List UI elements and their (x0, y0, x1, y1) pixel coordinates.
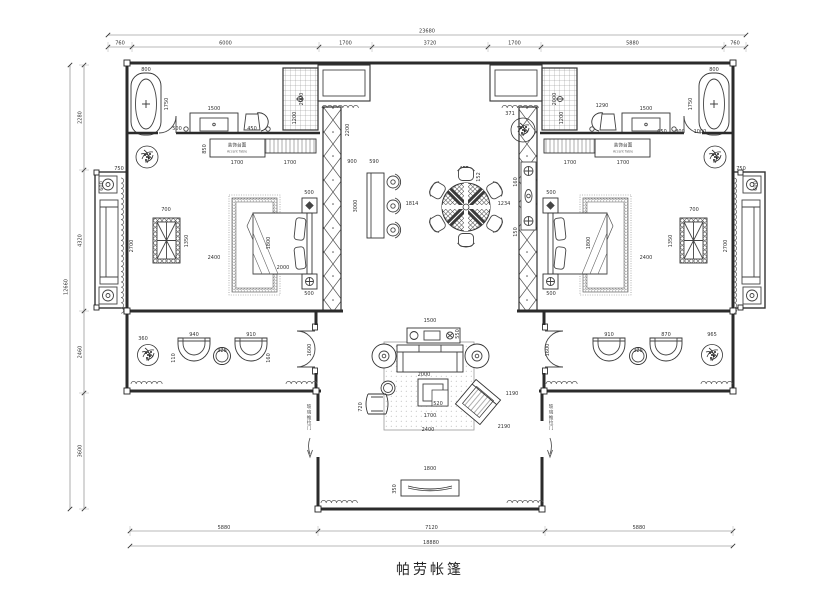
dim-label: 2700 (723, 240, 729, 253)
dim-label: 350 (392, 484, 398, 494)
dim-label: 2000 (299, 93, 305, 106)
dim-label: 2000 (552, 93, 558, 106)
right-half-geometry (490, 65, 765, 457)
drawing-title: 帕劳帐篷 (396, 562, 464, 578)
dim-label: 1600 (545, 344, 551, 357)
dim-label: 1814 (406, 201, 419, 207)
bar-counter (367, 173, 384, 238)
sliding-door-label: 玻璃推拉门 (549, 403, 554, 432)
dim-label: 800 (709, 67, 719, 73)
dim-label: 800 (675, 129, 685, 135)
dim-label: 150 (513, 227, 519, 237)
dim-label: 1750 (164, 98, 170, 111)
bar-stool (387, 174, 401, 190)
dim-label: 700 (689, 207, 699, 213)
dim-label: 1290 (596, 103, 609, 109)
dim-label: 910 (246, 332, 256, 338)
plant (704, 146, 726, 168)
dim-label: 160 (513, 177, 519, 187)
dim-label: 1800 (586, 237, 592, 250)
dim-label: 1200 (559, 112, 565, 125)
columns (94, 60, 743, 512)
dim-label: 2400 (208, 255, 221, 261)
dim-label: 965 (707, 332, 717, 338)
curtain (121, 178, 124, 313)
dim-label: 1500 (208, 106, 221, 112)
dim-label: 3720 (424, 41, 437, 47)
dim-label: 760 (730, 41, 740, 47)
plant (138, 345, 159, 366)
dim-label: 1800 (424, 466, 437, 472)
curtain (131, 381, 162, 384)
dim-label: 450 (247, 126, 257, 132)
accent-table-label-cn: 装饰台面 (228, 142, 247, 149)
dim-label: 5880 (626, 41, 639, 47)
dim-label: 1500 (424, 318, 437, 324)
dim-label: 360 (138, 336, 148, 342)
dim-label: 1700 (339, 41, 352, 47)
dressing-desk (184, 113, 270, 133)
tea-table (153, 218, 180, 263)
side-lamp-table (465, 344, 489, 368)
dim-label: 1700 (284, 160, 297, 166)
sofa (397, 345, 463, 372)
dim-label: 520 (433, 401, 443, 407)
dining-chair (458, 234, 475, 248)
sliding-door-label: 玻璃推拉门 (307, 403, 312, 432)
side-lamp-table (372, 344, 396, 368)
dim-label: 800 (141, 67, 151, 73)
dim-label: 1700 (424, 413, 437, 419)
bar-stool (387, 222, 401, 238)
wardrobe-strip (323, 107, 341, 311)
curtain (507, 500, 543, 503)
closet-strip (265, 139, 316, 153)
dim-label: 1800 (266, 237, 272, 250)
dim-label: 1700 (564, 160, 577, 166)
dim-label: 720 (358, 402, 364, 412)
accent-table-label-en: Accent Table (227, 150, 247, 154)
curtain (286, 381, 317, 384)
curtain (321, 500, 357, 503)
floor-plan-sheet: 装饰台面 Accent Table 装饰台面 Accent Table 帕劳帐篷… (0, 0, 837, 592)
dim-label: 750 (114, 166, 124, 172)
balcony-sofa (100, 200, 118, 284)
accent-table-label-en: Accent Table (613, 150, 633, 154)
dim-label: 325 (217, 348, 227, 354)
dim-label: 500 (304, 291, 314, 297)
dim-label: 2400 (640, 255, 653, 261)
dim-label: 500 (304, 190, 314, 196)
dim-label: 590 (369, 159, 379, 165)
dim-label: 500 (546, 190, 556, 196)
curtain (546, 381, 577, 384)
dim-label: 160 (266, 353, 272, 363)
dim-label: 110 (171, 353, 177, 363)
dim-total-left: 12660 (64, 279, 70, 295)
dim-label: 1350 (668, 235, 674, 248)
dim-label: 1700 (617, 160, 630, 166)
dim-label: 550 (455, 329, 461, 339)
bar-stool (387, 198, 401, 214)
dim-label: 5880 (633, 525, 646, 531)
bathtub (131, 73, 161, 135)
dim-label: 1234 (498, 201, 511, 207)
accent-table-label-cn: 装饰台面 (614, 142, 633, 149)
dining-chair (458, 167, 475, 181)
dim-label: 1200 (292, 112, 298, 125)
dim-label: 900 (347, 159, 357, 165)
dim-label: 1000 (694, 129, 707, 135)
dim-label: 3000 (353, 200, 359, 213)
dim-label: 700 (161, 207, 171, 213)
dim-label: 325 (633, 348, 643, 354)
dim-label: 3600 (78, 445, 84, 458)
dim-label: 600 (99, 181, 105, 191)
dim-label: 1350 (184, 235, 190, 248)
dim-label: 2000 (418, 372, 431, 378)
floor-plan-drawing: 装饰台面 Accent Table 装饰台面 Accent Table 帕劳帐篷… (0, 0, 837, 592)
dim-label: 2400 (422, 427, 435, 433)
plant (702, 345, 723, 366)
dim-label: 2280 (78, 111, 84, 124)
dim-label: 1190 (506, 391, 519, 397)
dim-label: 1600 (307, 344, 313, 357)
left-half-geometry (95, 65, 370, 457)
dim-label: 910 (604, 332, 614, 338)
generated-layer: 8001750500150045020001200170017008509005… (64, 29, 760, 549)
dim-total-top: 23680 (419, 29, 435, 35)
curtain (701, 381, 732, 384)
dim-label: 5880 (218, 525, 231, 531)
tv-console (401, 480, 459, 496)
dim-label: 1700 (508, 41, 521, 47)
dim-label: 7120 (425, 525, 438, 531)
dim-label: 2460 (78, 346, 84, 359)
console-fixtures (521, 162, 536, 230)
dining-table (442, 183, 490, 231)
passage-arrow (308, 438, 313, 457)
dim-total-bottom: 18880 (423, 540, 439, 546)
dim-label: 750 (736, 166, 746, 172)
dim-label: 650 (657, 129, 667, 135)
dim-label: 850 (202, 144, 208, 154)
dim-label: 500 (172, 126, 182, 132)
dim-label: 1500 (640, 106, 653, 112)
dim-label: 1750 (688, 98, 694, 111)
dim-label: 870 (661, 332, 671, 338)
dim-label: 2200 (345, 124, 351, 137)
dim-label: 940 (189, 332, 199, 338)
dim-label: 760 (115, 41, 125, 47)
walls (124, 61, 736, 510)
dim-label: 152 (476, 172, 482, 182)
plant (136, 146, 158, 168)
bed-area (229, 195, 317, 295)
dim-label: 1700 (231, 160, 244, 166)
dim-label: 2000 (277, 265, 290, 271)
balcony-side-table (99, 287, 117, 304)
dim-label: 2700 (129, 240, 135, 253)
dim-label: 2190 (498, 424, 511, 430)
dim-label: 6000 (219, 41, 232, 47)
sofa-back-table (407, 328, 460, 343)
dim-label: 600 (753, 181, 759, 191)
dim-label: 371 (505, 111, 515, 117)
dim-label: 500 (546, 291, 556, 297)
dim-label: 4320 (78, 234, 84, 247)
